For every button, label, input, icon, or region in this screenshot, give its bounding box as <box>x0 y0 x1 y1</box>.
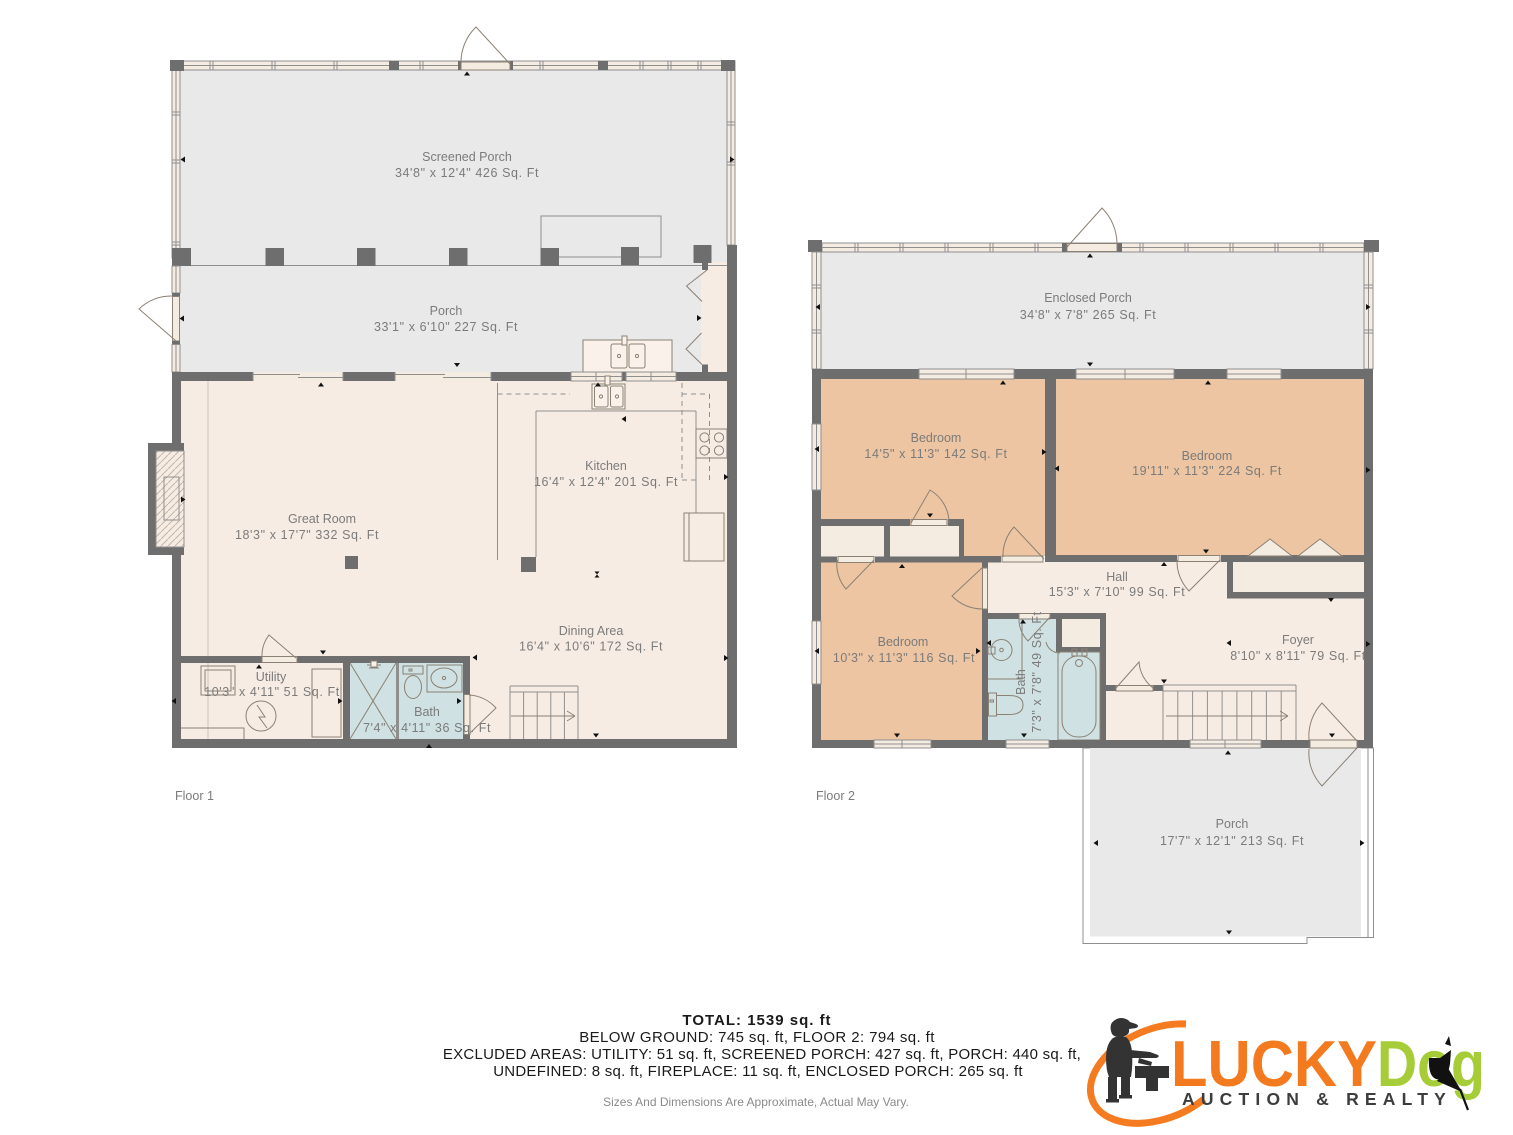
svg-text:EXCLUDED AREAS: UTILITY: 51 sq: EXCLUDED AREAS: UTILITY: 51 sq. ft, SCRE… <box>443 1046 1081 1063</box>
svg-text:Screened Porch: Screened Porch <box>422 150 512 164</box>
svg-text:Bedroom: Bedroom <box>1182 449 1233 463</box>
svg-text:10'3" x 11'3" 116 Sq. Ft: 10'3" x 11'3" 116 Sq. Ft <box>833 651 975 665</box>
svg-text:Bedroom: Bedroom <box>878 635 929 649</box>
svg-text:7'4" x 4'11" 36 Sq. Ft: 7'4" x 4'11" 36 Sq. Ft <box>363 721 491 735</box>
svg-text:10'3" x 4'11" 51 Sq. Ft: 10'3" x 4'11" 51 Sq. Ft <box>204 685 340 699</box>
svg-text:Utility: Utility <box>256 670 287 684</box>
svg-text:Kitchen: Kitchen <box>585 459 627 473</box>
svg-text:17'7" x 12'1" 213 Sq. Ft: 17'7" x 12'1" 213 Sq. Ft <box>1160 834 1304 848</box>
svg-text:AUCTION & REALTY: AUCTION & REALTY <box>1182 1089 1452 1109</box>
svg-text:Bath: Bath <box>1014 669 1028 695</box>
svg-text:Hall: Hall <box>1106 570 1128 584</box>
svg-text:16'4" x 10'6" 172 Sq. Ft: 16'4" x 10'6" 172 Sq. Ft <box>519 640 663 654</box>
svg-text:34'8" x 7'8" 265 Sq. Ft: 34'8" x 7'8" 265 Sq. Ft <box>1020 308 1157 322</box>
svg-text:18'3" x 17'7" 332 Sq. Ft: 18'3" x 17'7" 332 Sq. Ft <box>235 528 379 542</box>
svg-text:Floor 2: Floor 2 <box>816 789 855 803</box>
svg-text:8'10" x 8'11" 79 Sq. Ft: 8'10" x 8'11" 79 Sq. Ft <box>1230 649 1366 663</box>
svg-text:15'3" x 7'10" 99 Sq. Ft: 15'3" x 7'10" 99 Sq. Ft <box>1049 585 1186 599</box>
svg-text:Dining Area: Dining Area <box>559 624 624 638</box>
svg-text:Porch: Porch <box>1216 817 1249 831</box>
svg-text:Bedroom: Bedroom <box>911 431 962 445</box>
svg-text:BELOW GROUND: 745 sq. ft, FLOO: BELOW GROUND: 745 sq. ft, FLOOR 2: 794 s… <box>579 1029 935 1046</box>
svg-text:16'4" x 12'4" 201 Sq. Ft: 16'4" x 12'4" 201 Sq. Ft <box>534 475 678 489</box>
svg-text:33'1" x 6'10" 227 Sq. Ft: 33'1" x 6'10" 227 Sq. Ft <box>374 320 518 334</box>
svg-text:Bath: Bath <box>414 705 440 719</box>
svg-text:Porch: Porch <box>430 304 463 318</box>
svg-text:7'3" x 7'8" 49 Sq. Ft: 7'3" x 7'8" 49 Sq. Ft <box>1030 611 1044 732</box>
svg-text:Floor 1: Floor 1 <box>175 789 214 803</box>
svg-text:Foyer: Foyer <box>1282 633 1314 647</box>
svg-text:UNDEFINED: 8 sq. ft, FIREPLACE: UNDEFINED: 8 sq. ft, FIREPLACE: 11 sq. f… <box>493 1063 1023 1080</box>
svg-text:19'11" x 11'3" 224 Sq. Ft: 19'11" x 11'3" 224 Sq. Ft <box>1132 464 1282 478</box>
svg-text:Sizes And Dimensions Are Appro: Sizes And Dimensions Are Approximate, Ac… <box>603 1095 909 1109</box>
svg-text:Enclosed Porch: Enclosed Porch <box>1044 291 1132 305</box>
svg-text:TOTAL: 1539 sq. ft: TOTAL: 1539 sq. ft <box>682 1012 831 1029</box>
svg-text:Great Room: Great Room <box>288 512 356 526</box>
svg-text:34'8" x 12'4" 426 Sq. Ft: 34'8" x 12'4" 426 Sq. Ft <box>395 166 539 180</box>
svg-text:14'5" x 11'3" 142 Sq. Ft: 14'5" x 11'3" 142 Sq. Ft <box>864 447 1007 461</box>
